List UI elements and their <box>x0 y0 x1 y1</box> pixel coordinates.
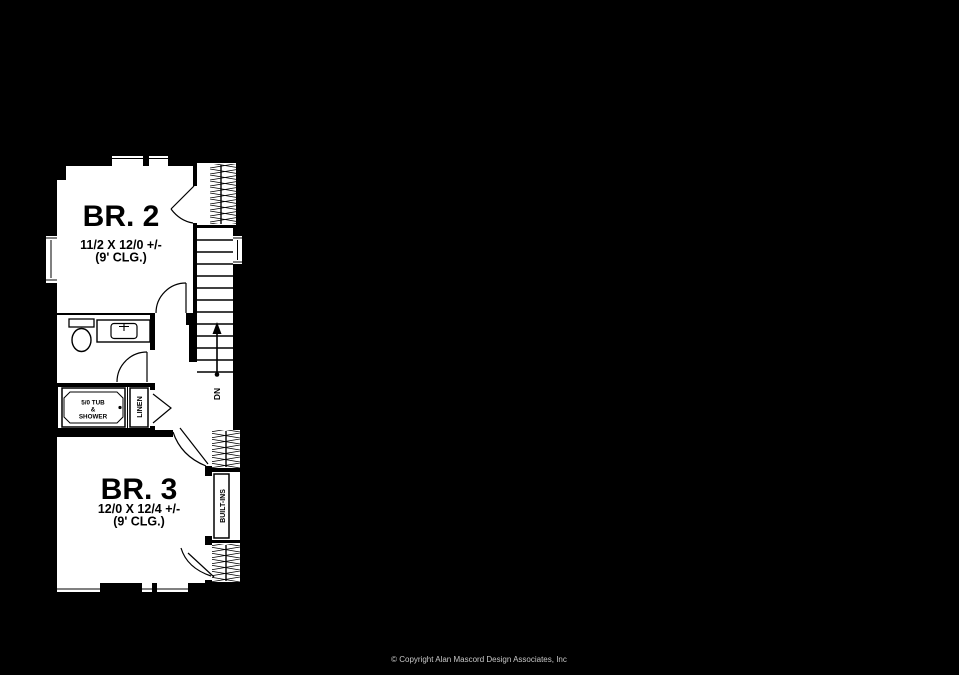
br2-name: BR. 2 <box>83 200 160 233</box>
copyright-text: © Copyright Alan Mascord Design Associat… <box>391 655 567 664</box>
br2-closet-doorway <box>191 186 197 223</box>
window <box>57 583 100 592</box>
bathroom-floor <box>57 315 150 383</box>
tub-label-line1: 5/0 TUB <box>81 400 105 407</box>
br2-doorway <box>155 313 186 325</box>
linen-label: LINEN <box>135 396 144 418</box>
tub-label-line3: SHOWER <box>79 414 108 421</box>
stairwell-floor <box>197 228 233 376</box>
floor-plan: DN 5/0 TUB & SHOWER LINEN <box>0 0 959 675</box>
br2-ceiling: (9' CLG.) <box>95 251 147 265</box>
window <box>142 583 152 592</box>
bathroom-doorway <box>147 350 157 383</box>
br3-ceiling: (9' CLG.) <box>113 515 165 529</box>
builtins-label: BUILT-INS <box>220 489 227 523</box>
floor-plan-page: DN 5/0 TUB & SHOWER LINEN <box>0 0 959 675</box>
clothes-rod-hatch <box>210 164 238 224</box>
tub-label-line2: & <box>91 407 96 414</box>
tub-faucet <box>118 406 121 409</box>
window <box>157 583 188 592</box>
window <box>149 156 168 166</box>
builtins-opening <box>205 476 212 536</box>
wall-jog <box>57 166 66 180</box>
stairs-dn-label: DN <box>212 388 222 400</box>
window <box>112 156 143 166</box>
br3-doorway <box>173 430 207 437</box>
arrow-origin-dot <box>215 372 220 377</box>
